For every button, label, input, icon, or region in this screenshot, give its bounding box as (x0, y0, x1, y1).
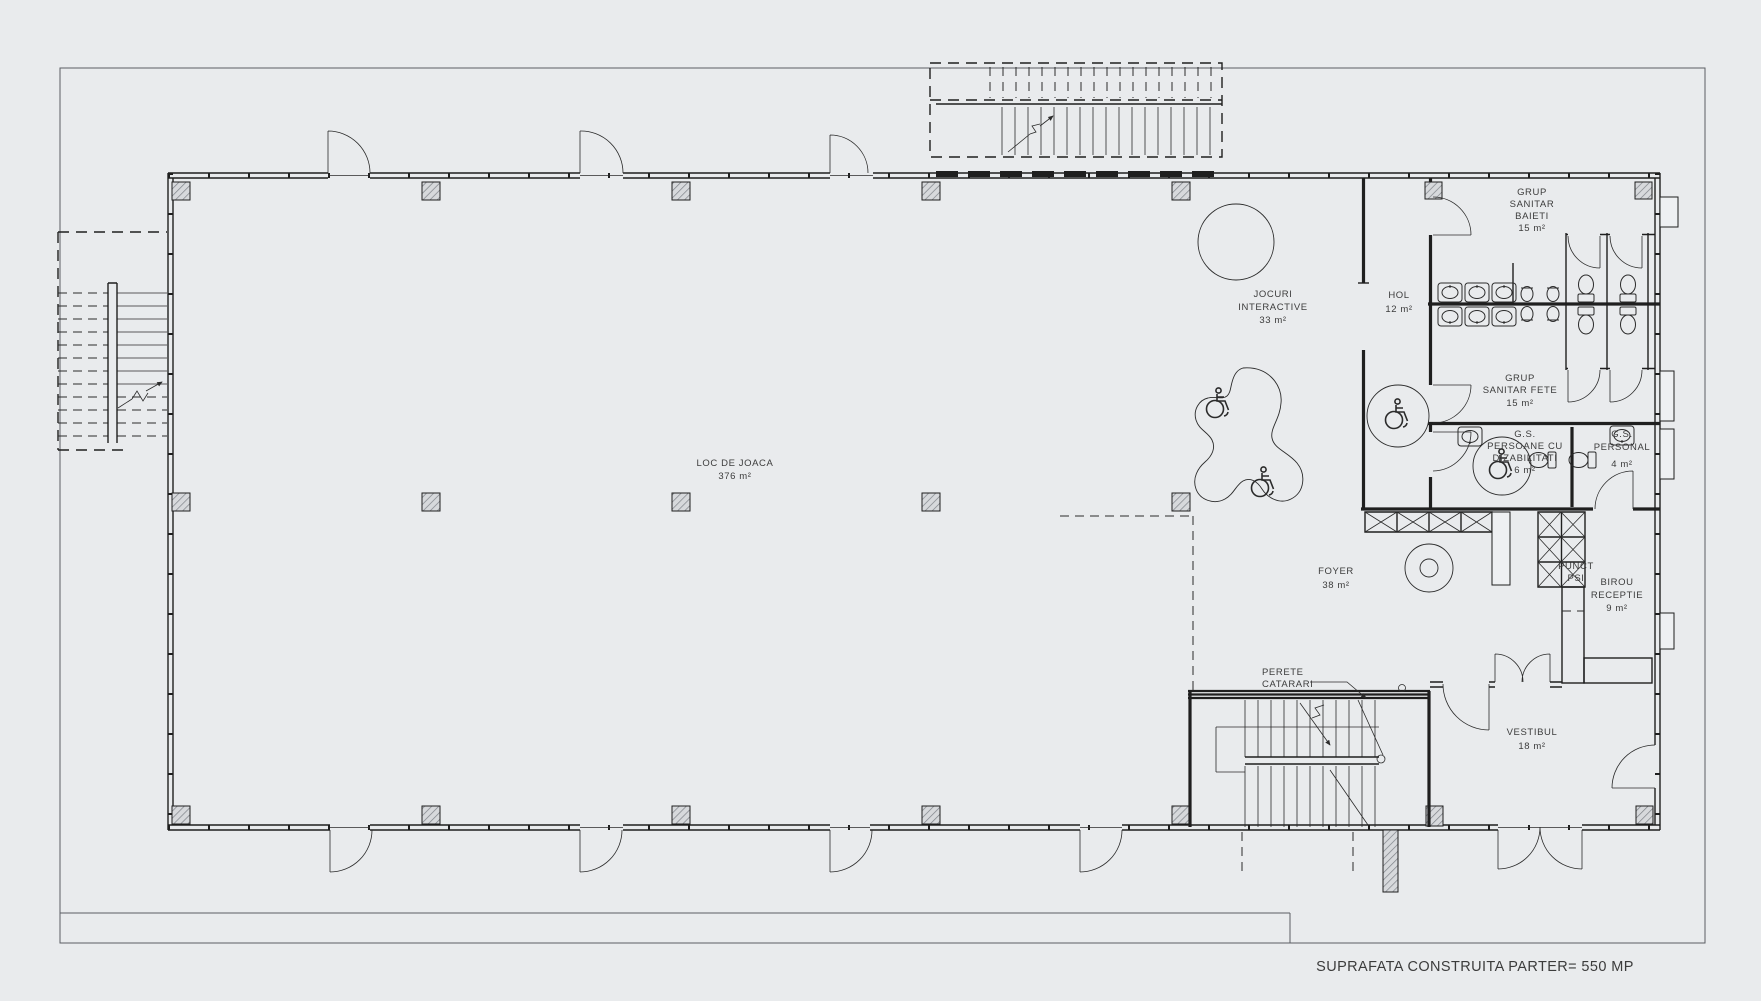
label-gs-personal-1: G.S. (1611, 429, 1632, 440)
play-circle (1198, 204, 1274, 280)
exterior-walls (168, 173, 1660, 830)
label-punct-psi-2: PSI (1567, 573, 1584, 584)
sheet-title: SUPRAFATA CONSTRUITA PARTER= 550 MP (1316, 959, 1634, 975)
door-entrance-double (1498, 827, 1582, 869)
stair-arrow-icon (118, 382, 162, 408)
label-loc-de-joaca: LOC DE JOACA (697, 458, 774, 469)
wheelchair-icon (1386, 399, 1408, 429)
urinal-icon (1521, 287, 1533, 302)
reception-desk (1562, 587, 1652, 683)
pillar (1492, 512, 1510, 585)
label-loc-de-joaca-area: 376 m² (718, 471, 751, 482)
label-punct-psi-1: PUNCT (1558, 561, 1594, 572)
turning-circle (1367, 385, 1429, 447)
label-birou-1: BIROU (1600, 577, 1633, 588)
play-elements (1195, 204, 1303, 502)
door-top-2 (580, 131, 623, 173)
label-gs-baieti-area: 15 m² (1518, 223, 1545, 234)
label-perete-1: PERETE (1262, 667, 1304, 678)
label-foyer-area: 38 m² (1322, 580, 1349, 591)
toilet-icon (1620, 275, 1636, 302)
label-hol: HOL (1388, 290, 1409, 301)
toilet-icon (1578, 275, 1594, 302)
door-stall-1 (1568, 236, 1600, 268)
exterior-doors (328, 131, 1655, 872)
label-jocuri-1: JOCURI (1254, 289, 1293, 300)
sink-icon (1458, 427, 1482, 446)
stair-arrow-icon (1300, 703, 1330, 745)
urinal-icon (1521, 307, 1533, 322)
sink-icon (1438, 307, 1462, 326)
toilet-icon (1578, 307, 1594, 334)
label-gs-fete-1: GRUP (1505, 373, 1535, 384)
label-jocuri-area: 33 m² (1259, 315, 1286, 326)
top-exterior-stair (930, 63, 1222, 174)
door-fete (1433, 385, 1471, 423)
projection-dashed-line (1060, 516, 1193, 693)
sink-icon (1465, 307, 1489, 326)
door-stall-4 (1610, 370, 1642, 402)
label-birou-area: 9 m² (1606, 603, 1627, 614)
label-gs-personal-area: 4 m² (1611, 459, 1632, 470)
label-gs-baieti-3: BAIETI (1515, 211, 1549, 222)
projection-dashed-line (1242, 832, 1353, 876)
label-gs-diz-1: G.S. (1514, 429, 1535, 440)
door-top-3 (830, 135, 868, 173)
label-gs-baieti-2: SANITAR (1510, 199, 1555, 210)
label-gs-fete-2: SANITAR FETE (1483, 385, 1558, 396)
door-right-wall (1612, 745, 1655, 788)
sink-icon (1438, 283, 1462, 302)
label-vestibul-area: 18 m² (1518, 741, 1545, 752)
right-wall-openings (1660, 197, 1678, 649)
door-dizabilitati (1433, 432, 1471, 471)
sink-icon (1492, 307, 1516, 326)
right-wall (1655, 173, 1660, 830)
label-gs-diz-3: DIZABILITATI (1493, 453, 1558, 464)
door-bottom-2 (580, 830, 622, 872)
floor-plan-drawing: LOC DE JOACA 376 m² JOCURI INTERACTIVE 3… (0, 0, 1761, 1001)
wheelchair-icon (1252, 467, 1274, 497)
door-personal (1595, 471, 1633, 509)
psi-shaft (1365, 512, 1585, 587)
sheet-frame (60, 68, 1705, 943)
door-vestibul-single (1443, 684, 1489, 730)
label-foyer: FOYER (1318, 566, 1354, 577)
climbing-wall-stair (1188, 685, 1430, 828)
door-top-1 (328, 131, 370, 173)
round-table-center (1420, 559, 1438, 577)
door-bottom-1 (330, 830, 372, 872)
wheelchair-icon (1207, 388, 1229, 418)
door-baieti (1433, 197, 1471, 235)
label-perete-2: CATARARI (1262, 679, 1313, 690)
label-jocuri-2: INTERACTIVE (1238, 302, 1307, 313)
sink-icon (1465, 283, 1489, 302)
toilet-icon (1620, 307, 1636, 334)
vestibul-wall (1430, 682, 1562, 687)
door-stall-2 (1610, 236, 1642, 268)
label-gs-baieti-1: GRUP (1517, 187, 1547, 198)
label-gs-fete-area: 15 m² (1506, 398, 1533, 409)
door-bottom-3 (830, 830, 872, 872)
floor-plan-sheet: LOC DE JOACA 376 m² JOCURI INTERACTIVE 3… (0, 0, 1761, 1001)
urinal-icon (1547, 307, 1559, 322)
top-wall (168, 173, 1660, 178)
door-foyer-double (1495, 654, 1550, 682)
exterior-pier (1383, 830, 1398, 892)
label-vestibul: VESTIBUL (1507, 727, 1558, 738)
door-stall-3 (1568, 370, 1600, 402)
door-bottom-4 (1080, 830, 1122, 872)
urinal-icon (1547, 287, 1559, 302)
left-exterior-stair (58, 232, 167, 450)
label-gs-diz-2: PERSOANE CU (1487, 441, 1563, 452)
play-blob (1195, 368, 1303, 502)
round-table (1405, 544, 1453, 592)
label-birou-2: RECEPTIE (1591, 590, 1643, 601)
label-gs-diz-area: 6 m² (1514, 465, 1535, 476)
label-gs-personal-2: PERSONAL (1594, 442, 1651, 453)
label-hol-area: 12 m² (1385, 304, 1412, 315)
